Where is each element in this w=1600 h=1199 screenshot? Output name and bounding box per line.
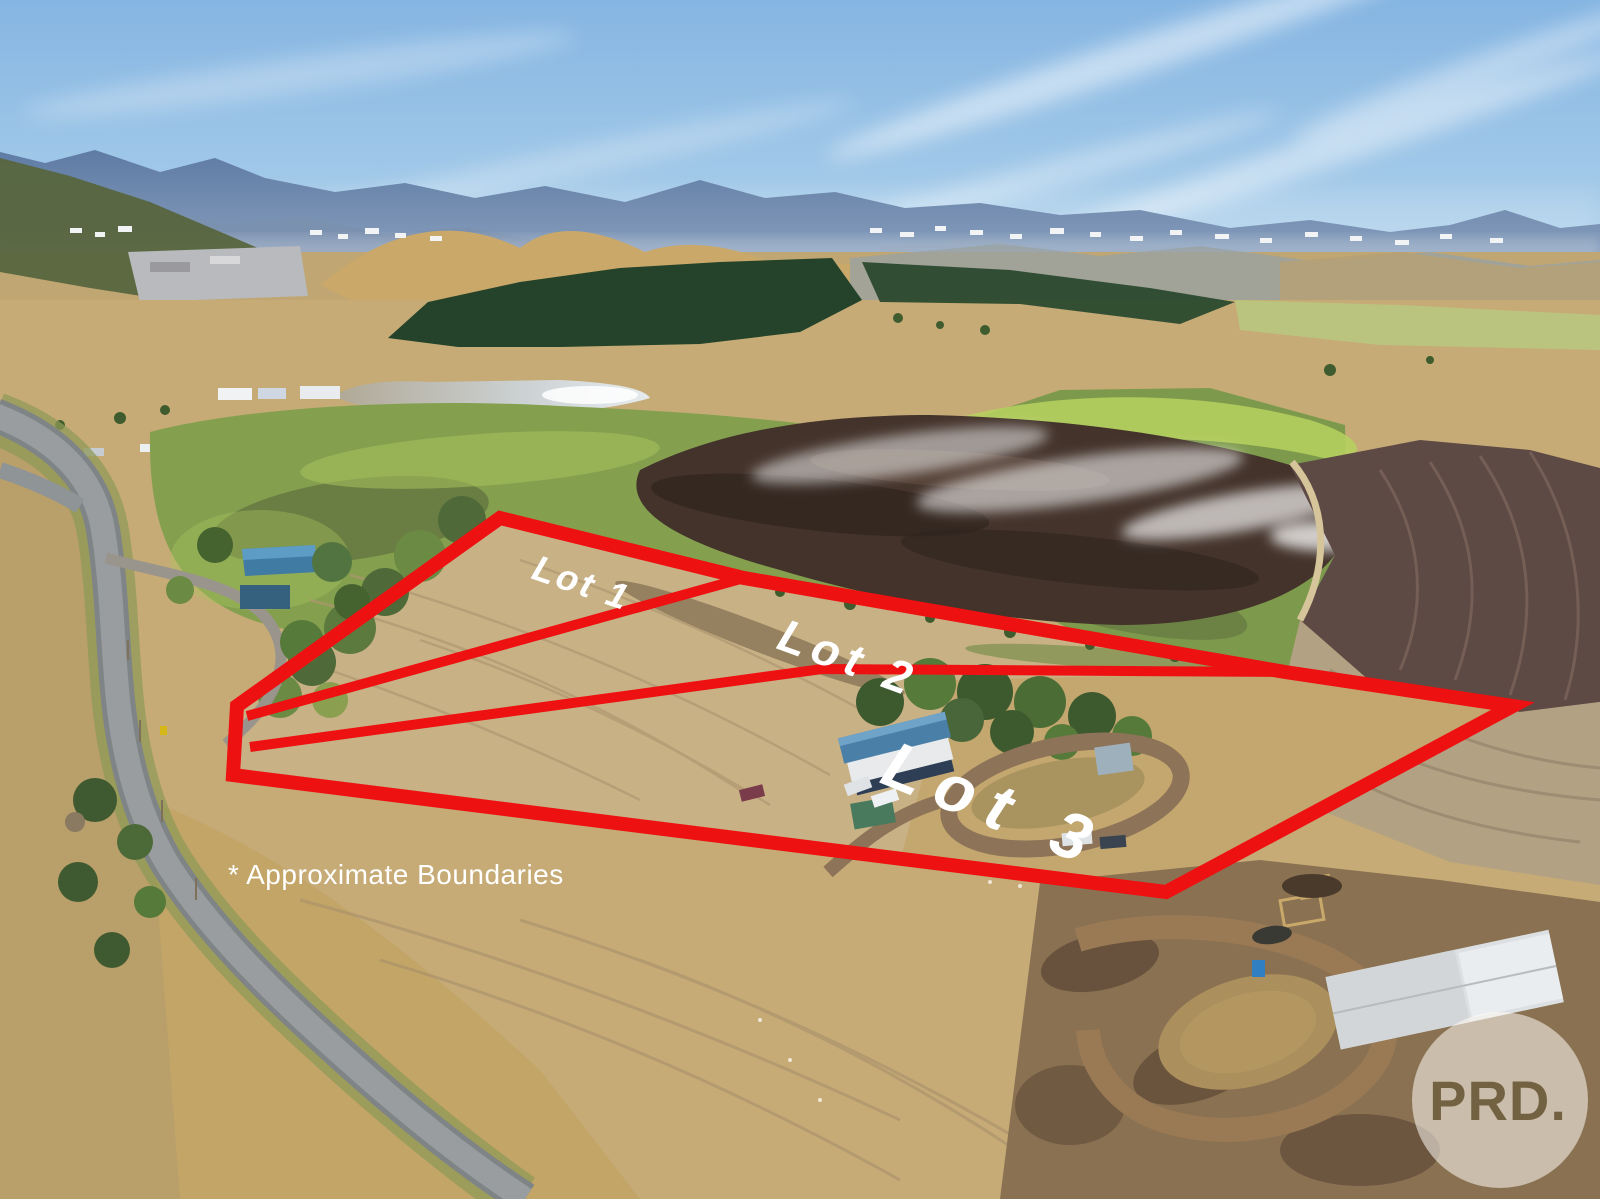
photo-canvas: Lot 1 Lot 2 Lot 3 * Approximate Boundari… — [0, 0, 1600, 1199]
grey-shed — [1094, 743, 1134, 776]
boundaries-disclaimer: * Approximate Boundaries — [228, 859, 564, 890]
soil-pile — [1282, 874, 1342, 898]
portaloo — [1252, 960, 1265, 977]
quarry — [128, 246, 308, 302]
prd-logo: PRD. — [1412, 1012, 1588, 1188]
prd-logo-text: PRD. — [1429, 1069, 1567, 1132]
dam-reflection — [542, 386, 638, 404]
aerial-property-photo: Lot 1 Lot 2 Lot 3 * Approximate Boundari… — [0, 0, 1600, 1199]
yellow-bin — [160, 726, 167, 735]
